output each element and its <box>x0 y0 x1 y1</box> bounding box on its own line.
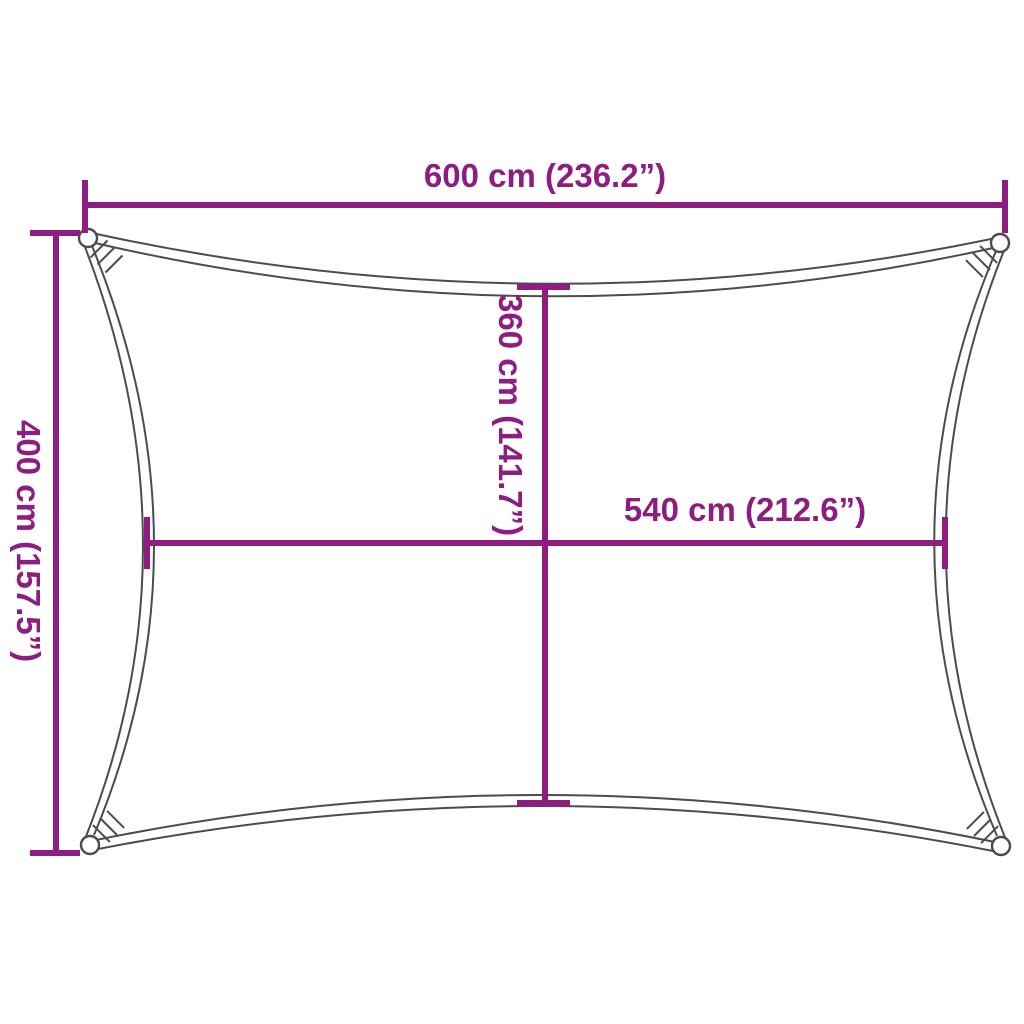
dim-line-top-width <box>85 202 1005 208</box>
dim-line-inner-width <box>147 540 945 546</box>
sail-left-edge-outer <box>83 242 143 839</box>
sail-bottom-edge-outer <box>93 806 998 852</box>
sail-top-edge-outer <box>92 233 996 284</box>
dimension-diagram: 600 cm (236.2”) 400 cm (157.5”) 360 cm (… <box>0 0 1024 1024</box>
corner-ring-top-right <box>991 234 1009 252</box>
corner-ring-bottom-right <box>992 837 1010 855</box>
dim-tick-inner-width-left <box>144 517 150 569</box>
dimension-label-inner-height: 360 cm (141.7”) <box>486 287 530 543</box>
corner-ring-bottom-left <box>81 836 99 854</box>
dimension-label-inner-width: 540 cm (212.6”) <box>545 490 945 530</box>
dim-tick-inner-height-bottom <box>517 800 570 806</box>
dimension-label-top-width: 600 cm (236.2”) <box>85 156 1005 196</box>
sail-right-edge-outer <box>946 248 1006 840</box>
dimension-label-left-height: 400 cm (157.5”) <box>4 230 48 852</box>
dim-line-left-height <box>53 233 59 855</box>
